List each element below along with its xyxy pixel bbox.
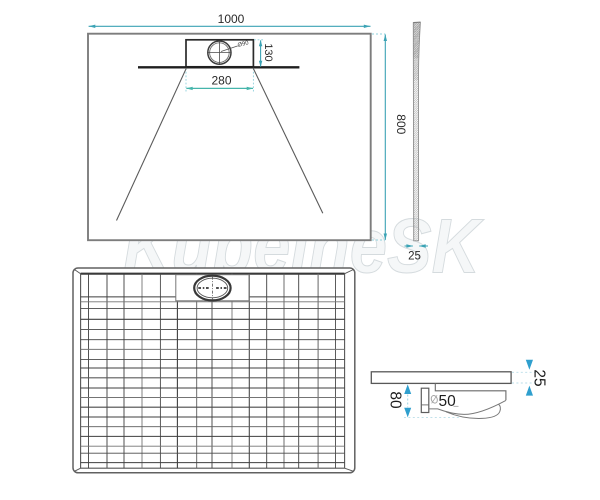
- svg-text:25: 25: [408, 251, 421, 263]
- svg-text:280: 280: [211, 74, 231, 88]
- svg-text:1000: 1000: [218, 12, 245, 26]
- svg-text:50: 50: [439, 393, 457, 410]
- svg-text:130: 130: [262, 43, 274, 61]
- svg-text:800: 800: [394, 114, 408, 134]
- svg-text:25: 25: [530, 369, 547, 386]
- svg-text:80: 80: [386, 391, 403, 409]
